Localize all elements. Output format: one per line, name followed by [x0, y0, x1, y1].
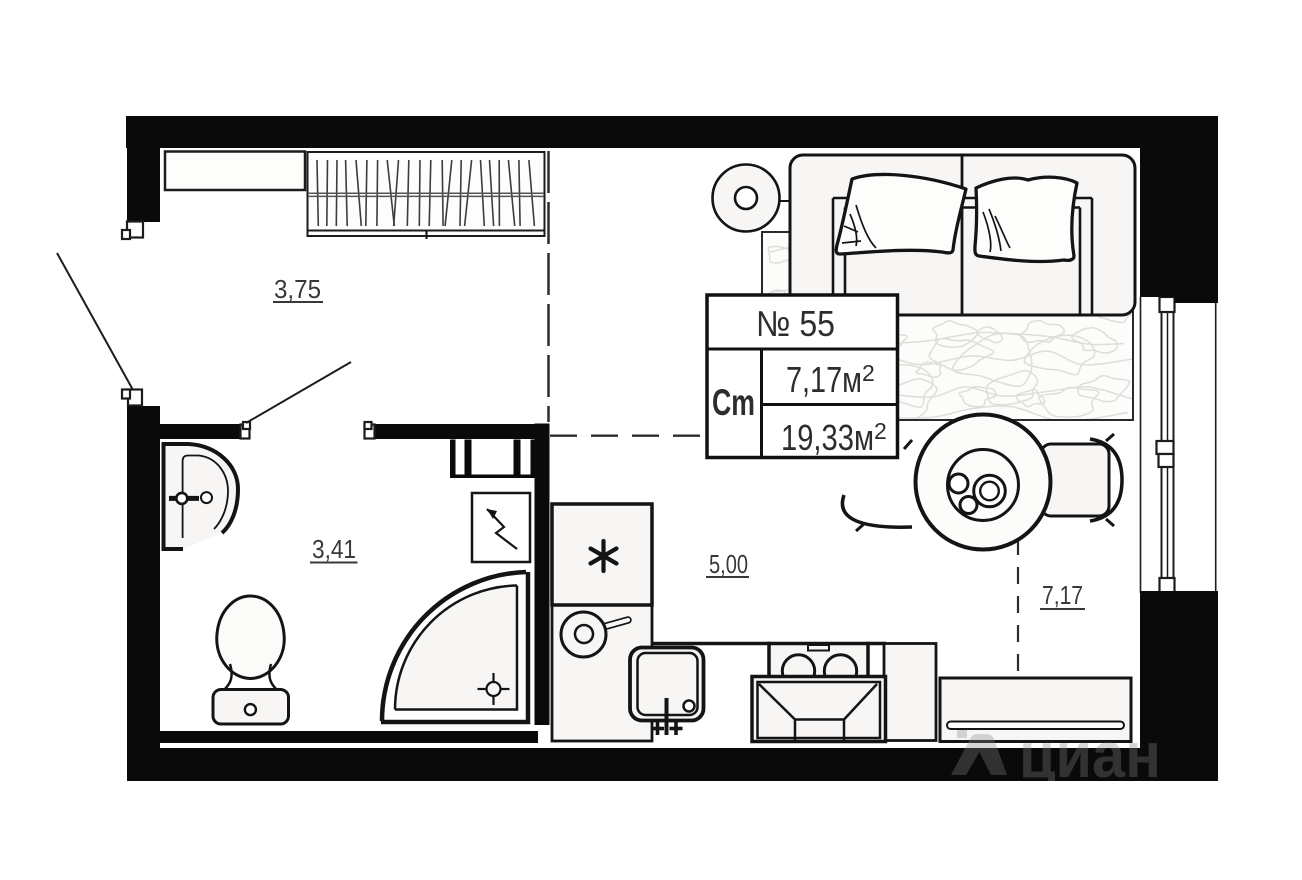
svg-text:циан: циан	[1019, 719, 1161, 791]
svg-text:19,33м: 19,33м	[781, 417, 874, 458]
svg-text:7,17: 7,17	[1042, 580, 1083, 610]
svg-text:5,00: 5,00	[709, 549, 748, 579]
svg-text:№ 55: № 55	[756, 303, 835, 344]
svg-text:7,17м: 7,17м	[786, 359, 862, 400]
svg-text:3,75: 3,75	[274, 274, 321, 304]
svg-text:3,41: 3,41	[312, 534, 356, 564]
svg-text:Cm: Cm	[712, 382, 755, 423]
svg-text:2: 2	[862, 360, 875, 386]
svg-text:2: 2	[874, 418, 887, 444]
